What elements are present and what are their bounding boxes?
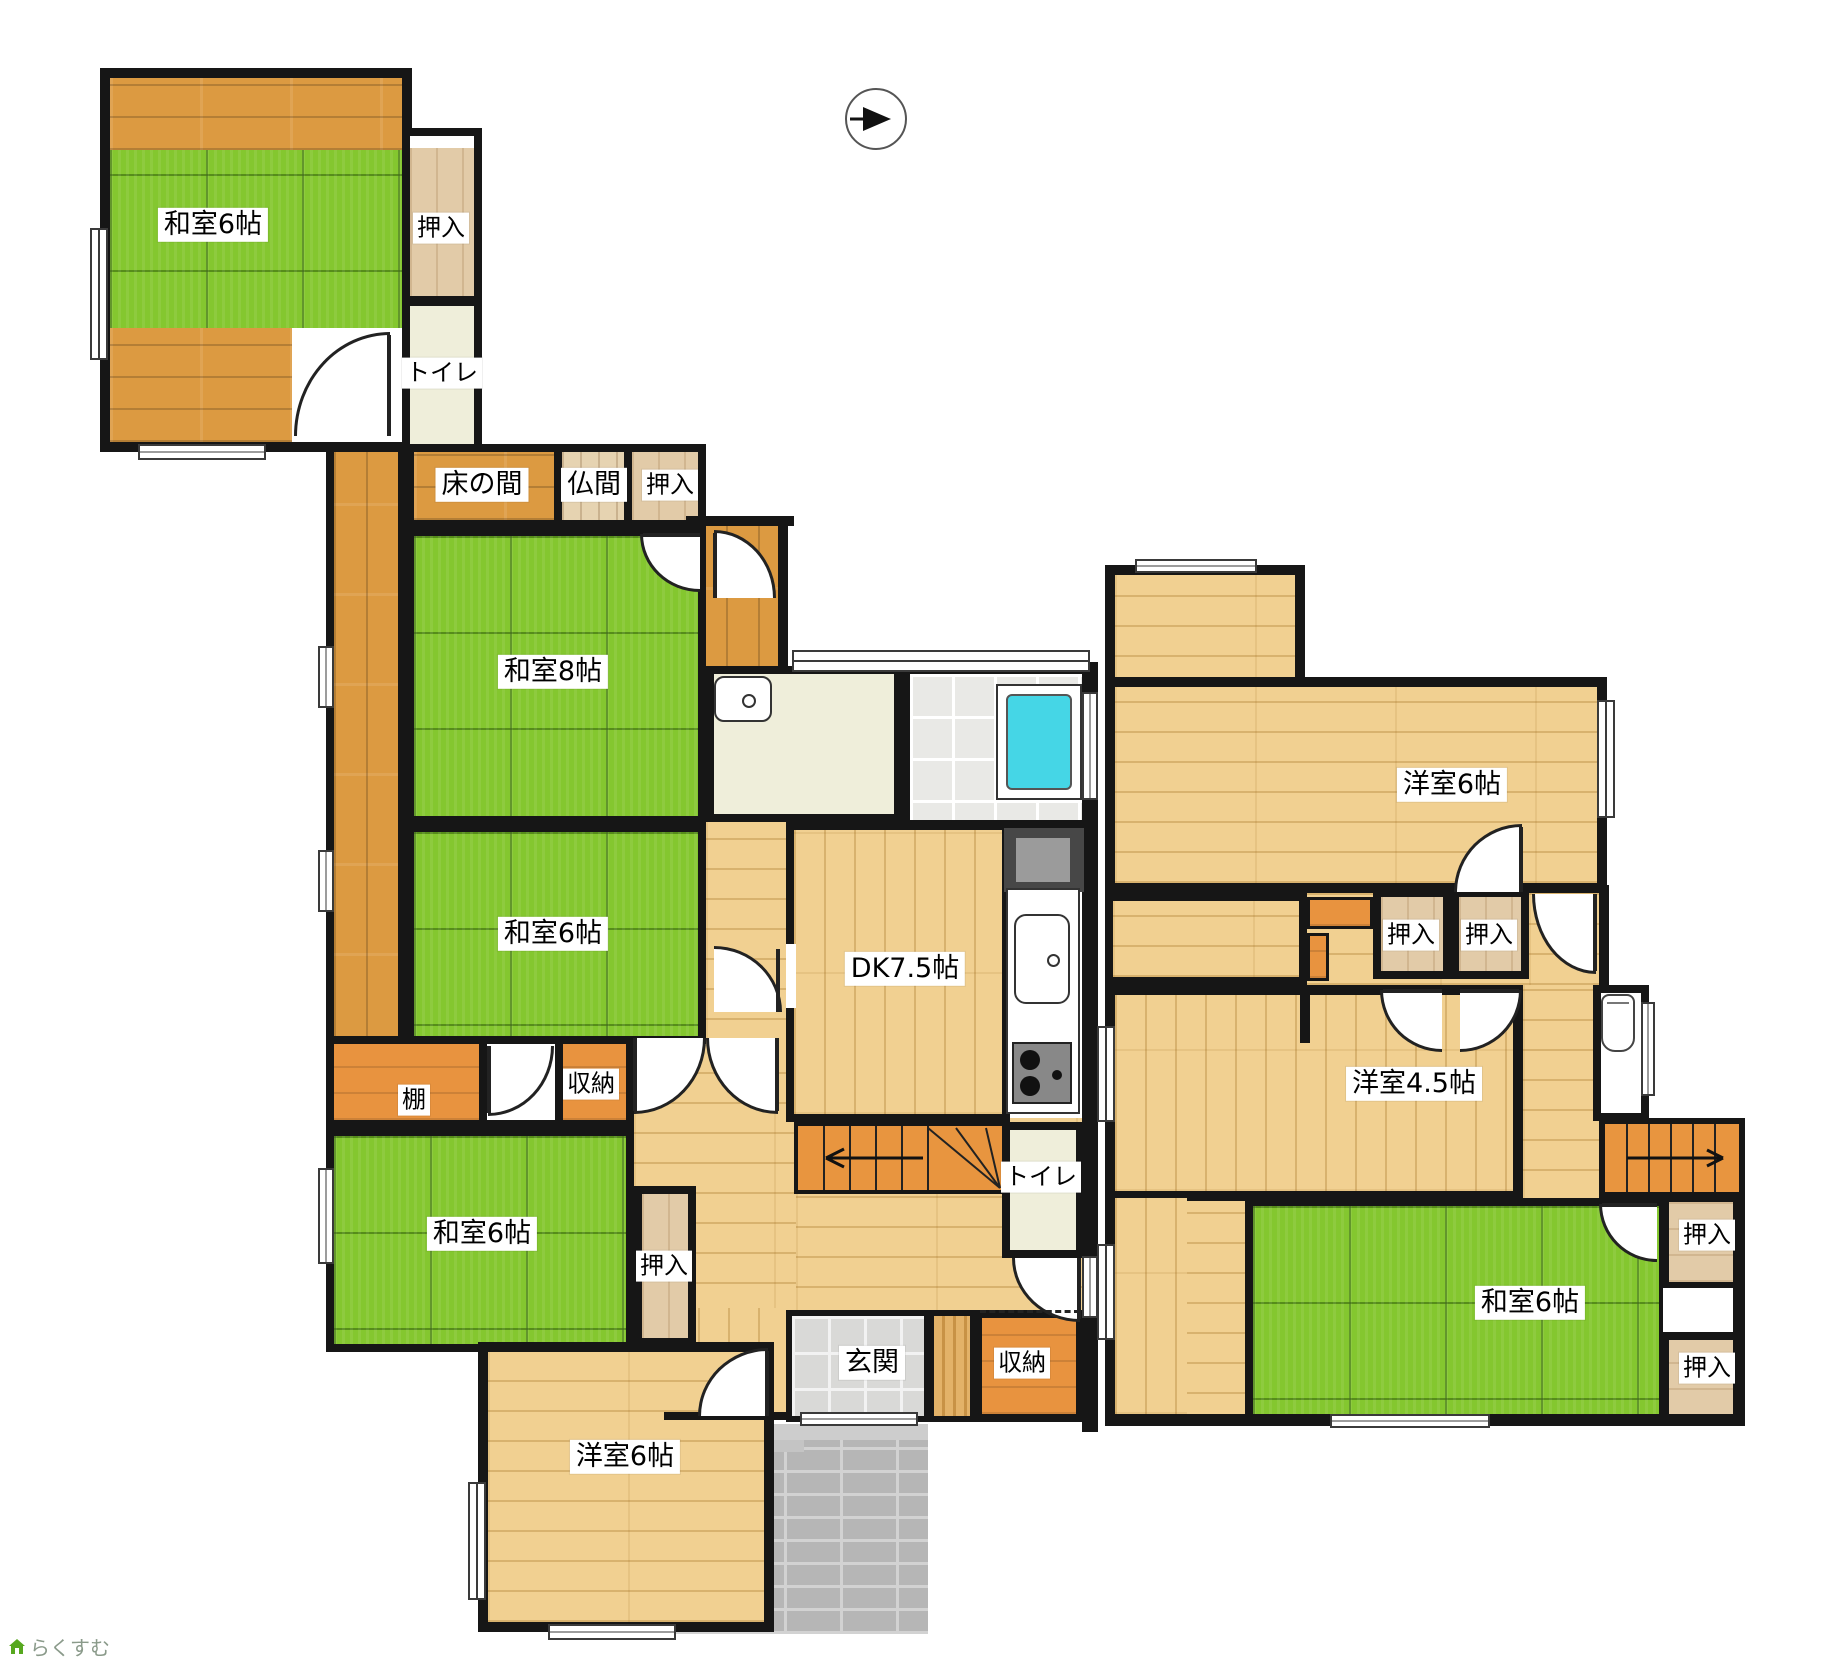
window	[138, 444, 266, 460]
label-washitsu6-bottom-left: 和室6帖	[427, 1217, 537, 1251]
label-oshiire-top-left: 押入	[413, 213, 469, 244]
label-toilet-1f: トイレ	[1001, 1162, 1081, 1193]
wall-stub-45	[1300, 985, 1310, 1043]
shelf-2f-a	[1307, 897, 1373, 929]
toilet-2f-fixture	[1601, 994, 1635, 1052]
shelf-2f-b	[1307, 933, 1329, 981]
hall-floor-upper	[706, 814, 786, 1050]
corridor-left	[326, 452, 406, 1046]
washroom-sink	[714, 676, 772, 722]
dk-door-opening	[786, 944, 796, 1008]
compass-north-icon	[843, 86, 909, 152]
label-youshitsu45: 洋室4.5帖	[1346, 1067, 1482, 1101]
label-shuunou-mid: 収納	[563, 1069, 619, 1100]
site-logo: らくすむ	[8, 1632, 110, 1661]
window	[318, 646, 334, 708]
room-youshitsu6-2f	[1105, 677, 1607, 893]
label-tokonoma: 床の間	[436, 468, 529, 502]
label-genkan: 玄関	[839, 1346, 905, 1380]
window	[90, 228, 108, 360]
label-washitsu6-top-left: 和室6帖	[158, 208, 268, 242]
bathtub	[996, 684, 1082, 800]
wall-divider	[555, 1044, 563, 1120]
window	[318, 1168, 334, 1264]
genkan-step	[928, 1310, 976, 1422]
refrigerator	[1004, 828, 1084, 892]
label-washitsu8: 和室8帖	[498, 655, 608, 689]
window	[1597, 700, 1615, 818]
stairs-2f	[1599, 1118, 1745, 1198]
window	[468, 1482, 486, 1600]
window	[318, 850, 334, 912]
floorplan-canvas: 和室6帖 押入 トイレ 床の間 仏間 押入 和室8帖 和室6帖 棚 収納 和室6…	[0, 0, 1841, 1671]
wall-divider	[479, 1044, 487, 1120]
kitchen-sink	[1014, 914, 1070, 1004]
label-dk: DK7.5帖	[845, 952, 965, 986]
logo-text: らくすむ	[30, 1632, 110, 1661]
window	[1641, 1002, 1655, 1096]
label-shuunou-genkan: 収納	[994, 1348, 1050, 1379]
engawa-wood-bottom	[110, 328, 292, 442]
label-oshiire-2f-c: 押入	[1679, 1220, 1735, 1251]
label-washitsu6-middle: 和室6帖	[498, 917, 608, 951]
room-youshitsu6-2f-extension	[1105, 565, 1305, 687]
window	[1097, 1244, 1115, 1340]
engawa-wood-top	[110, 78, 402, 150]
gas-stove	[1012, 1042, 1072, 1104]
window	[548, 1624, 676, 1640]
label-tana: 棚	[398, 1085, 430, 1116]
stairs-1f	[794, 1122, 1006, 1194]
label-youshitsu6-1f: 洋室6帖	[570, 1440, 680, 1474]
window-bath-band	[792, 650, 1090, 672]
label-oshiire-2f-d: 押入	[1679, 1353, 1735, 1384]
wall-divider	[410, 296, 474, 306]
threshold-dashed	[980, 1310, 1080, 1313]
closet-column-top-left	[402, 128, 482, 452]
label-oshiire-2f-b: 押入	[1461, 920, 1517, 951]
stairs-1f-treads	[798, 1126, 1002, 1190]
gap-2f-closets	[1663, 1288, 1743, 1334]
label-toilet-top-left: トイレ	[402, 358, 482, 389]
window	[1082, 1256, 1098, 1318]
window	[1082, 692, 1098, 800]
label-youshitsu6-2f: 洋室6帖	[1397, 768, 1507, 802]
window	[1097, 1026, 1115, 1122]
window	[1330, 1414, 1490, 1428]
label-oshiire-8: 押入	[642, 470, 698, 501]
label-oshiire-bottom-left: 押入	[636, 1251, 692, 1282]
landing-2f-left	[1105, 893, 1307, 985]
window	[1135, 559, 1257, 573]
wall-corridor-top-right	[778, 520, 788, 674]
room-washitsu6-2f	[1245, 1198, 1667, 1424]
label-washitsu6-2f: 和室6帖	[1475, 1286, 1585, 1320]
stairs-2f-treads	[1605, 1124, 1739, 1192]
corridor-2f-bottom-left	[1105, 1198, 1187, 1424]
label-oshiire-2f-a: 押入	[1383, 920, 1439, 951]
wall-2f-mid-right	[1599, 885, 1609, 989]
label-butsuma: 仏間	[561, 468, 627, 502]
entrance-sliding-door	[800, 1412, 918, 1426]
logo-house-icon	[8, 1638, 26, 1656]
